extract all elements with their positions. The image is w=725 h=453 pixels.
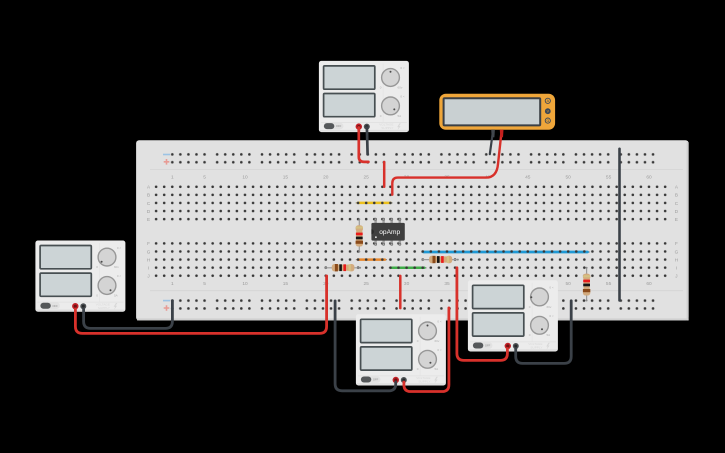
svg-text:G: G [147, 249, 151, 254]
svg-text:55: 55 [606, 281, 612, 287]
svg-text:5: 5 [203, 281, 206, 287]
svg-text:35: 35 [444, 281, 450, 287]
svg-text:55: 55 [606, 174, 612, 180]
svg-text:F: F [147, 241, 150, 246]
svg-text:10: 10 [242, 281, 248, 287]
svg-text:H: H [147, 257, 150, 262]
svg-text:1: 1 [171, 174, 174, 180]
svg-text:25: 25 [364, 174, 370, 180]
svg-text:50: 50 [566, 281, 572, 287]
svg-text:B: B [147, 193, 150, 198]
svg-text:G: G [675, 249, 679, 254]
svg-text:50: 50 [566, 174, 572, 180]
svg-text:I: I [676, 266, 677, 271]
svg-text:60: 60 [646, 174, 652, 180]
svg-text:J: J [675, 274, 677, 279]
svg-text:J: J [147, 274, 149, 279]
svg-text:B: B [675, 193, 678, 198]
svg-text:1: 1 [171, 281, 174, 287]
svg-text:45: 45 [525, 174, 531, 180]
svg-text:10: 10 [242, 174, 248, 180]
svg-text:60: 60 [646, 281, 652, 287]
svg-text:20: 20 [323, 174, 329, 180]
svg-text:15: 15 [283, 174, 289, 180]
svg-text:E: E [675, 217, 678, 222]
svg-text:Ω: Ω [546, 119, 549, 123]
svg-text:H: H [675, 257, 678, 262]
svg-text:30: 30 [404, 281, 410, 287]
svg-text:F: F [675, 241, 678, 246]
svg-text:5: 5 [203, 174, 206, 180]
svg-text:25: 25 [364, 281, 370, 287]
svg-text:opAmp: opAmp [379, 229, 400, 236]
svg-text:15: 15 [283, 281, 289, 287]
svg-text:I: I [148, 266, 149, 271]
svg-text:E: E [147, 217, 150, 222]
